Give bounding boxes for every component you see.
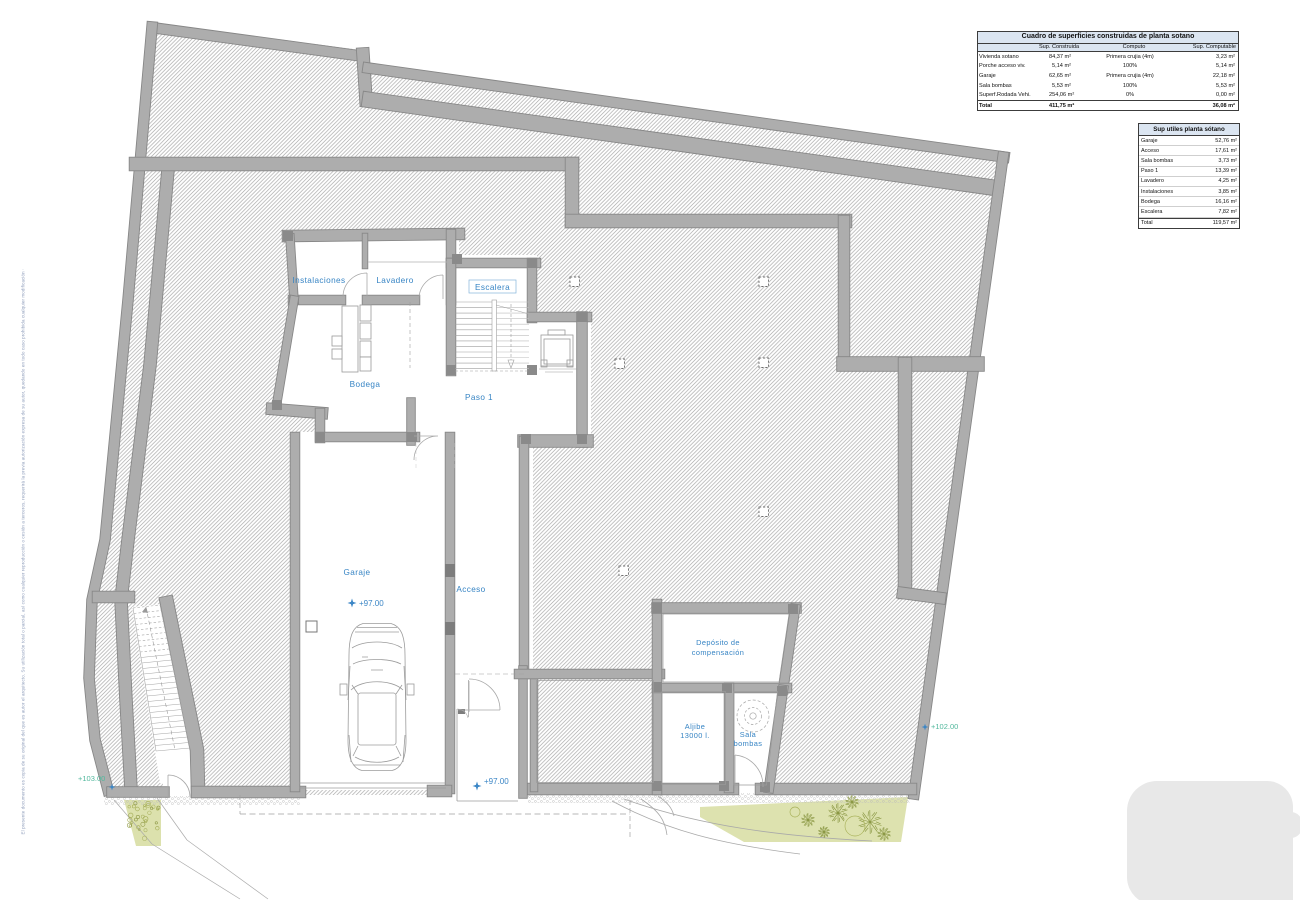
svg-text:bombas: bombas xyxy=(734,739,763,748)
svg-text:13000 l.: 13000 l. xyxy=(680,731,710,740)
svg-text:Acceso: Acceso xyxy=(456,585,485,594)
svg-text:Instalaciones: Instalaciones xyxy=(293,276,346,285)
svg-text:+103.00: +103.00 xyxy=(78,774,105,783)
svg-text:+97.00: +97.00 xyxy=(484,777,509,786)
svg-text:Lavadero: Lavadero xyxy=(376,276,413,285)
svg-text:Aljibe: Aljibe xyxy=(685,722,705,731)
svg-text:Sala: Sala xyxy=(740,730,757,739)
svg-text:+97.00: +97.00 xyxy=(359,599,384,608)
svg-text:Escalera: Escalera xyxy=(475,283,510,292)
svg-text:compensación: compensación xyxy=(692,648,744,657)
svg-text:Bodega: Bodega xyxy=(350,380,381,389)
svg-text:Paso 1: Paso 1 xyxy=(465,393,493,402)
svg-text:Depósito de: Depósito de xyxy=(696,638,740,647)
svg-text:Garaje: Garaje xyxy=(344,568,371,577)
svg-text:+102.00: +102.00 xyxy=(931,722,958,731)
